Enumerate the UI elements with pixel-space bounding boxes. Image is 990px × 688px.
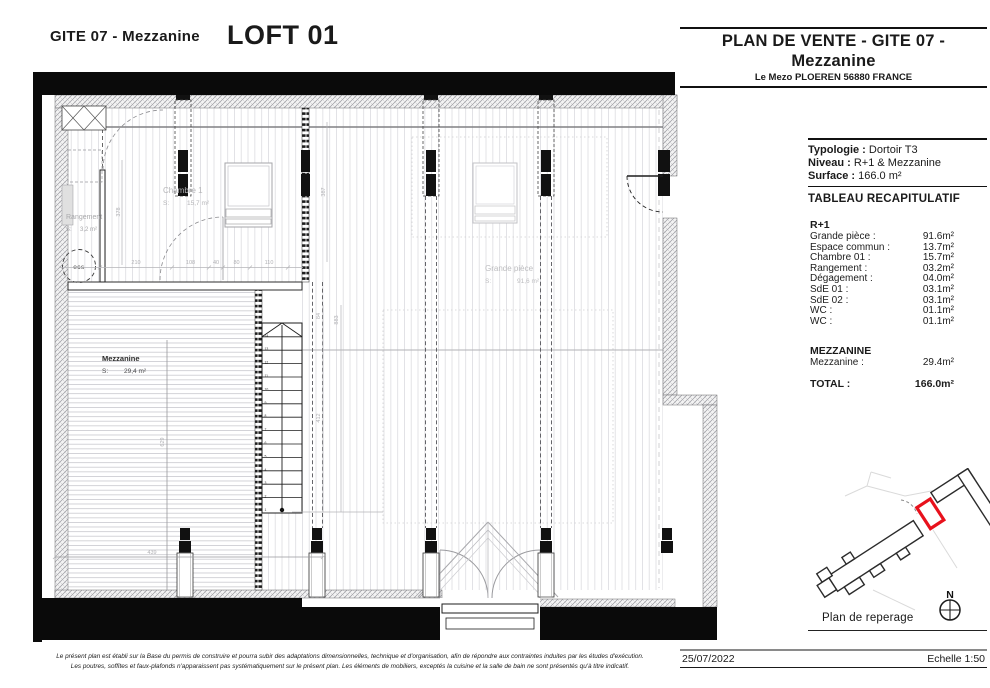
dim-40: 40 xyxy=(213,260,219,266)
room-label-mezzanine: Mezzanine xyxy=(102,354,140,363)
unit-title: LOFT 01 xyxy=(227,20,339,51)
room-s-grande-piece: S: xyxy=(485,278,491,285)
dim-84: 84 xyxy=(316,313,322,319)
room-area-rangement: 3,2 m² xyxy=(80,227,97,233)
typology-block: Typologie : Dortoir T3 Niveau : R+1 & Me… xyxy=(808,138,987,187)
total-row: TOTAL :166.0m² xyxy=(810,379,954,390)
project-title: GITE 07 - Mezzanine xyxy=(50,28,200,45)
plan-scale: Echelle 1:50 xyxy=(927,653,985,665)
plan-date: 25/07/2022 xyxy=(682,653,735,665)
floor-textures xyxy=(68,108,663,590)
mezzanine-section-title: MEZZANINE xyxy=(810,345,871,357)
table-row: Grande pièce :91.6m² xyxy=(810,232,954,243)
panel-divider xyxy=(808,630,987,631)
niveau-value: R+1 & Mezzanine xyxy=(854,157,941,169)
floor-plan: 1234567891011121314 xyxy=(30,62,730,647)
staircase: 1234567891011121314 xyxy=(262,323,302,513)
recap-table-title: TABLEAU RECAPITULATIF xyxy=(808,193,960,205)
plan-de-vente-sheet: { "header": { "project": "GITE 07 - Mezz… xyxy=(0,0,990,688)
svg-text:4: 4 xyxy=(265,468,267,472)
svg-text:7: 7 xyxy=(265,428,267,432)
dim-412: 412 xyxy=(316,413,322,422)
table-row: WC :01.1m² xyxy=(810,317,954,328)
dim-883: 883 xyxy=(334,315,340,324)
r1-section-title: R+1 xyxy=(810,219,830,231)
recap-r1-rows: Grande pièce :91.6m² Espace commun :13.7… xyxy=(810,232,954,327)
niveau-label: Niveau : xyxy=(808,157,851,169)
room-s-mezzanine: S: xyxy=(102,368,108,375)
dim-210: 210 xyxy=(131,260,140,266)
location-map: N xyxy=(815,468,990,628)
map-buildings xyxy=(815,469,990,624)
bed-chambre1 xyxy=(225,163,272,227)
compass: N xyxy=(940,589,960,620)
disclaimer: Le présent plan est établi sur la Base d… xyxy=(35,652,665,673)
room-label-rangement: Rangement xyxy=(66,214,102,221)
bed-grande-piece xyxy=(473,163,517,223)
svg-text:12: 12 xyxy=(265,361,269,365)
svg-text:6: 6 xyxy=(265,441,267,445)
north-label: N xyxy=(946,589,954,601)
table-row: SdE 01 :03.1m² xyxy=(810,285,954,296)
surface-label: Surface : xyxy=(808,170,855,182)
disclaimer-line1: Le présent plan est établi sur la Base d… xyxy=(35,652,665,662)
svg-text:8: 8 xyxy=(265,414,267,418)
room-area-chambre1: 15,7 m² xyxy=(187,200,210,207)
table-row-mezzanine: Mezzanine :29.4m² xyxy=(810,358,954,369)
room-label-grande-piece: Grande pièce xyxy=(485,264,534,273)
dim-108: 108 xyxy=(186,260,195,266)
reperage-label: Plan de reperage xyxy=(822,612,913,624)
panel-title-line1: PLAN DE VENTE - GITE 07 - xyxy=(680,31,987,51)
dim-110: 110 xyxy=(265,260,274,266)
panel-address: Le Mezo PLOEREN 56880 FRANCE xyxy=(680,72,987,83)
svg-text:3: 3 xyxy=(265,481,267,485)
dim-629: 629 xyxy=(160,437,166,446)
date-scale-bar: 25/07/2022 Echelle 1:50 xyxy=(680,649,987,668)
skylight-box xyxy=(62,106,106,130)
svg-text:9: 9 xyxy=(265,401,267,405)
disclaimer-line2: Les poutres, soffites et faux-plafonds n… xyxy=(35,662,665,672)
panel-title-line2: Mezzanine xyxy=(680,51,987,71)
dim-80: 80 xyxy=(233,260,239,266)
panel-title-block: PLAN DE VENTE - GITE 07 - Mezzanine Le M… xyxy=(680,27,987,88)
room-area-grande-piece: 91,6 m² xyxy=(517,278,540,285)
map-drive-curve xyxy=(901,500,917,514)
dim-439: 439 xyxy=(147,550,156,556)
map-unit-marker xyxy=(917,499,944,529)
svg-text:2: 2 xyxy=(265,495,267,499)
svg-text:11: 11 xyxy=(265,374,269,378)
room-s-chambre1: S: xyxy=(163,200,169,207)
dim-387: 387 xyxy=(321,187,327,196)
room-s-rangement: S: xyxy=(66,227,72,233)
svg-text:13: 13 xyxy=(265,347,269,351)
surface-value: 166.0 m² xyxy=(858,170,901,182)
svg-text:5: 5 xyxy=(265,454,267,458)
svg-text:10: 10 xyxy=(265,387,269,391)
dim-378: 378 xyxy=(116,207,122,216)
room-label-chambre1: Chambre 1 xyxy=(163,186,203,195)
svg-text:1: 1 xyxy=(265,508,267,512)
room-area-mezzanine: 29,4 m² xyxy=(124,368,147,375)
typologie-value: Dortoir T3 xyxy=(869,144,918,156)
typologie-label: Typologie : xyxy=(808,144,866,156)
svg-text:14: 14 xyxy=(265,334,269,338)
